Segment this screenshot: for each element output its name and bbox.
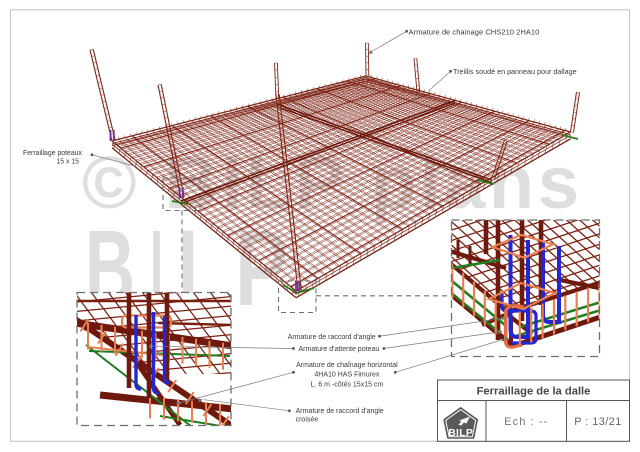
svg-text:15 x 15: 15 x 15 bbox=[56, 159, 79, 166]
svg-text:4HA10 HAS Fimurex: 4HA10 HAS Fimurex bbox=[314, 372, 379, 379]
svg-text:Ferraillage de la dalle: Ferraillage de la dalle bbox=[477, 386, 591, 398]
svg-text:L. 6 m -côtés 15x15 cm: L. 6 m -côtés 15x15 cm bbox=[311, 381, 384, 388]
svg-text:Armature de chainage CHS210 2H: Armature de chainage CHS210 2HA10 bbox=[409, 28, 540, 37]
svg-text:BILP: BILP bbox=[448, 428, 473, 439]
svg-text:Treillis soudé en panneau pour: Treillis soudé en panneau pour dallage bbox=[453, 67, 577, 76]
svg-text:Armature de chaînage horizonta: Armature de chaînage horizontal bbox=[296, 362, 398, 369]
svg-text:P: P bbox=[235, 207, 288, 328]
svg-text:Armature de raccord d'angle: Armature de raccord d'angle bbox=[296, 408, 384, 415]
svg-text:Armature d'attente poteau: Armature d'attente poteau bbox=[299, 346, 380, 353]
svg-text:croisée: croisée bbox=[296, 417, 319, 424]
svg-text:Ferraillage poteaux: Ferraillage poteaux bbox=[23, 150, 83, 157]
svg-text:Ech : --: Ech : -- bbox=[504, 416, 548, 428]
svg-text:Armature de raccord d'angle: Armature de raccord d'angle bbox=[288, 334, 376, 341]
svg-text:P : 13/21: P : 13/21 bbox=[574, 416, 621, 428]
